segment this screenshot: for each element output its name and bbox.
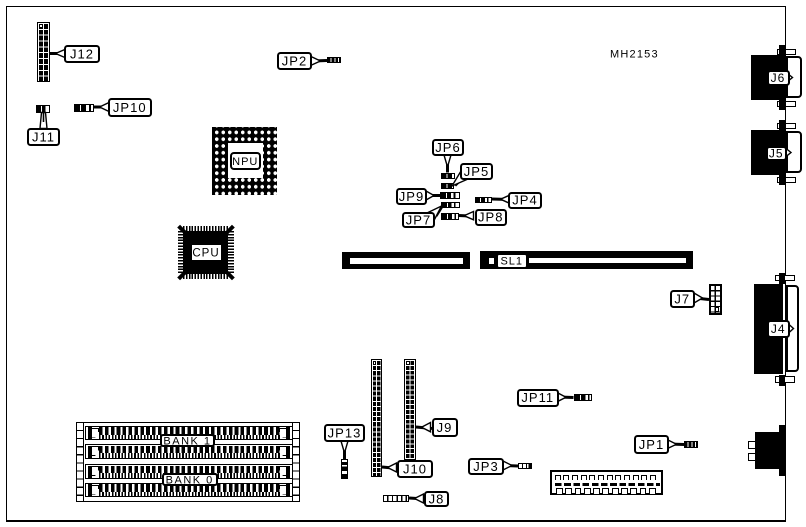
svg-text:JP7: JP7 — [406, 212, 431, 227]
svg-text:J9: J9 — [437, 420, 453, 435]
svg-text:NPU: NPU — [232, 156, 258, 168]
svg-text:J11: J11 — [32, 130, 55, 145]
svg-text:BANK 0: BANK 0 — [166, 474, 214, 486]
svg-text:JP6: JP6 — [435, 140, 460, 155]
svg-text:MH2153: MH2153 — [610, 49, 659, 61]
svg-text:JP1: JP1 — [639, 437, 664, 452]
svg-text:J4: J4 — [771, 322, 786, 336]
svg-text:JP13: JP13 — [328, 426, 362, 441]
svg-text:JP2: JP2 — [282, 54, 307, 69]
svg-text:J10: J10 — [403, 462, 427, 477]
svg-text:JP9: JP9 — [399, 189, 424, 204]
svg-text:J12: J12 — [70, 46, 94, 61]
svg-text:SL1: SL1 — [500, 255, 523, 267]
svg-text:J5: J5 — [769, 146, 784, 160]
svg-text:JP8: JP8 — [478, 210, 503, 225]
svg-text:CPU: CPU — [192, 248, 219, 260]
svg-text:JP3: JP3 — [473, 459, 498, 474]
svg-text:JP5: JP5 — [464, 164, 489, 179]
svg-text:J7: J7 — [674, 292, 690, 307]
svg-text:JP10: JP10 — [113, 100, 147, 115]
svg-text:J6: J6 — [771, 71, 786, 85]
svg-text:JP4: JP4 — [512, 193, 537, 208]
svg-text:JP11: JP11 — [521, 390, 554, 405]
svg-text:J8: J8 — [429, 492, 445, 507]
svg-text:BANK 1: BANK 1 — [163, 435, 211, 447]
